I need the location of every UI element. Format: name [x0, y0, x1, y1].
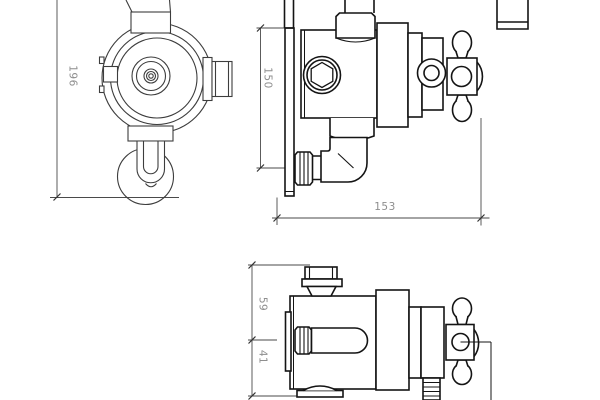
top-inlet-pipe — [126, 0, 171, 12]
crosshead-top-neck-bottom — [456, 317, 468, 325]
cartridge-housing-bottom — [376, 290, 409, 390]
adjuster-body-bottom — [421, 307, 444, 378]
dimension-label-side-depth: 153 — [374, 201, 396, 213]
left-notch-lower — [100, 86, 105, 93]
crosshead-bottom-ball-bottom — [453, 364, 472, 385]
top-inlet-pipe-side — [345, 0, 374, 13]
outlet-bend-outer — [137, 141, 165, 183]
bottom-outlet-collar — [128, 126, 173, 141]
handle-center-dot — [149, 74, 153, 78]
bottom-view — [286, 267, 492, 400]
crosshead-front-bulge — [477, 62, 482, 91]
valve-body-outer-ring — [102, 23, 212, 133]
handle-dial-outer — [132, 57, 170, 95]
inlet-flange — [302, 279, 342, 287]
cartridge-capsule — [312, 328, 368, 353]
elbow-pipe-stub — [313, 156, 321, 180]
technical-drawing-canvas: 196 150 153 59 41 — [0, 0, 600, 400]
handle-dial-inner — [137, 62, 166, 91]
crosshead-bottom-ball — [453, 99, 472, 122]
valve-body-inner-ring — [117, 38, 197, 118]
side-outlet-flange — [203, 58, 212, 101]
crosshead-bottom-neck — [456, 95, 468, 101]
outlet-tip-arc — [146, 184, 157, 187]
dimension-label-side-height: 150 — [262, 67, 274, 89]
threaded-outlet-nipple — [423, 378, 440, 400]
left-tab — [286, 312, 292, 371]
handle-hub-ring-inner — [147, 72, 156, 81]
crosshead-top-neck — [456, 52, 468, 59]
side-view — [285, 0, 529, 196]
temperature-stop-tab — [104, 67, 118, 83]
valve-technical-drawing: 196 150 153 59 41 — [0, 0, 600, 400]
cartridge-housing — [377, 23, 408, 127]
top-inlet-collar-side — [336, 13, 375, 38]
crosshead-top-ball-bottom — [453, 298, 472, 319]
housing-step-bottom — [409, 307, 421, 378]
wall-plate — [285, 28, 294, 196]
front-view — [100, 0, 233, 205]
dim-150-extensions — [257, 28, 288, 168]
dimension-label-bottom-lower: 41 — [257, 350, 269, 364]
bottom-flange — [297, 391, 343, 398]
adjuster-ring-inner — [424, 66, 439, 81]
valve-body-middle-ring — [111, 32, 204, 125]
top-inlet-collar — [131, 12, 171, 33]
inlet-neck — [307, 287, 336, 297]
crosshead-top-ball — [453, 31, 472, 54]
left-notch-upper — [100, 57, 105, 64]
cropped-fixture-top-right — [497, 0, 528, 29]
union-nut-bottom — [295, 327, 312, 354]
dimension-label-bottom-upper: 59 — [257, 297, 269, 311]
crosshead-hub-circle — [452, 67, 472, 87]
dimension-label-front-height: 196 — [67, 65, 79, 87]
wall-plate-top-tab — [285, 0, 294, 28]
crosshead-bottom-neck-bottom — [456, 360, 468, 367]
